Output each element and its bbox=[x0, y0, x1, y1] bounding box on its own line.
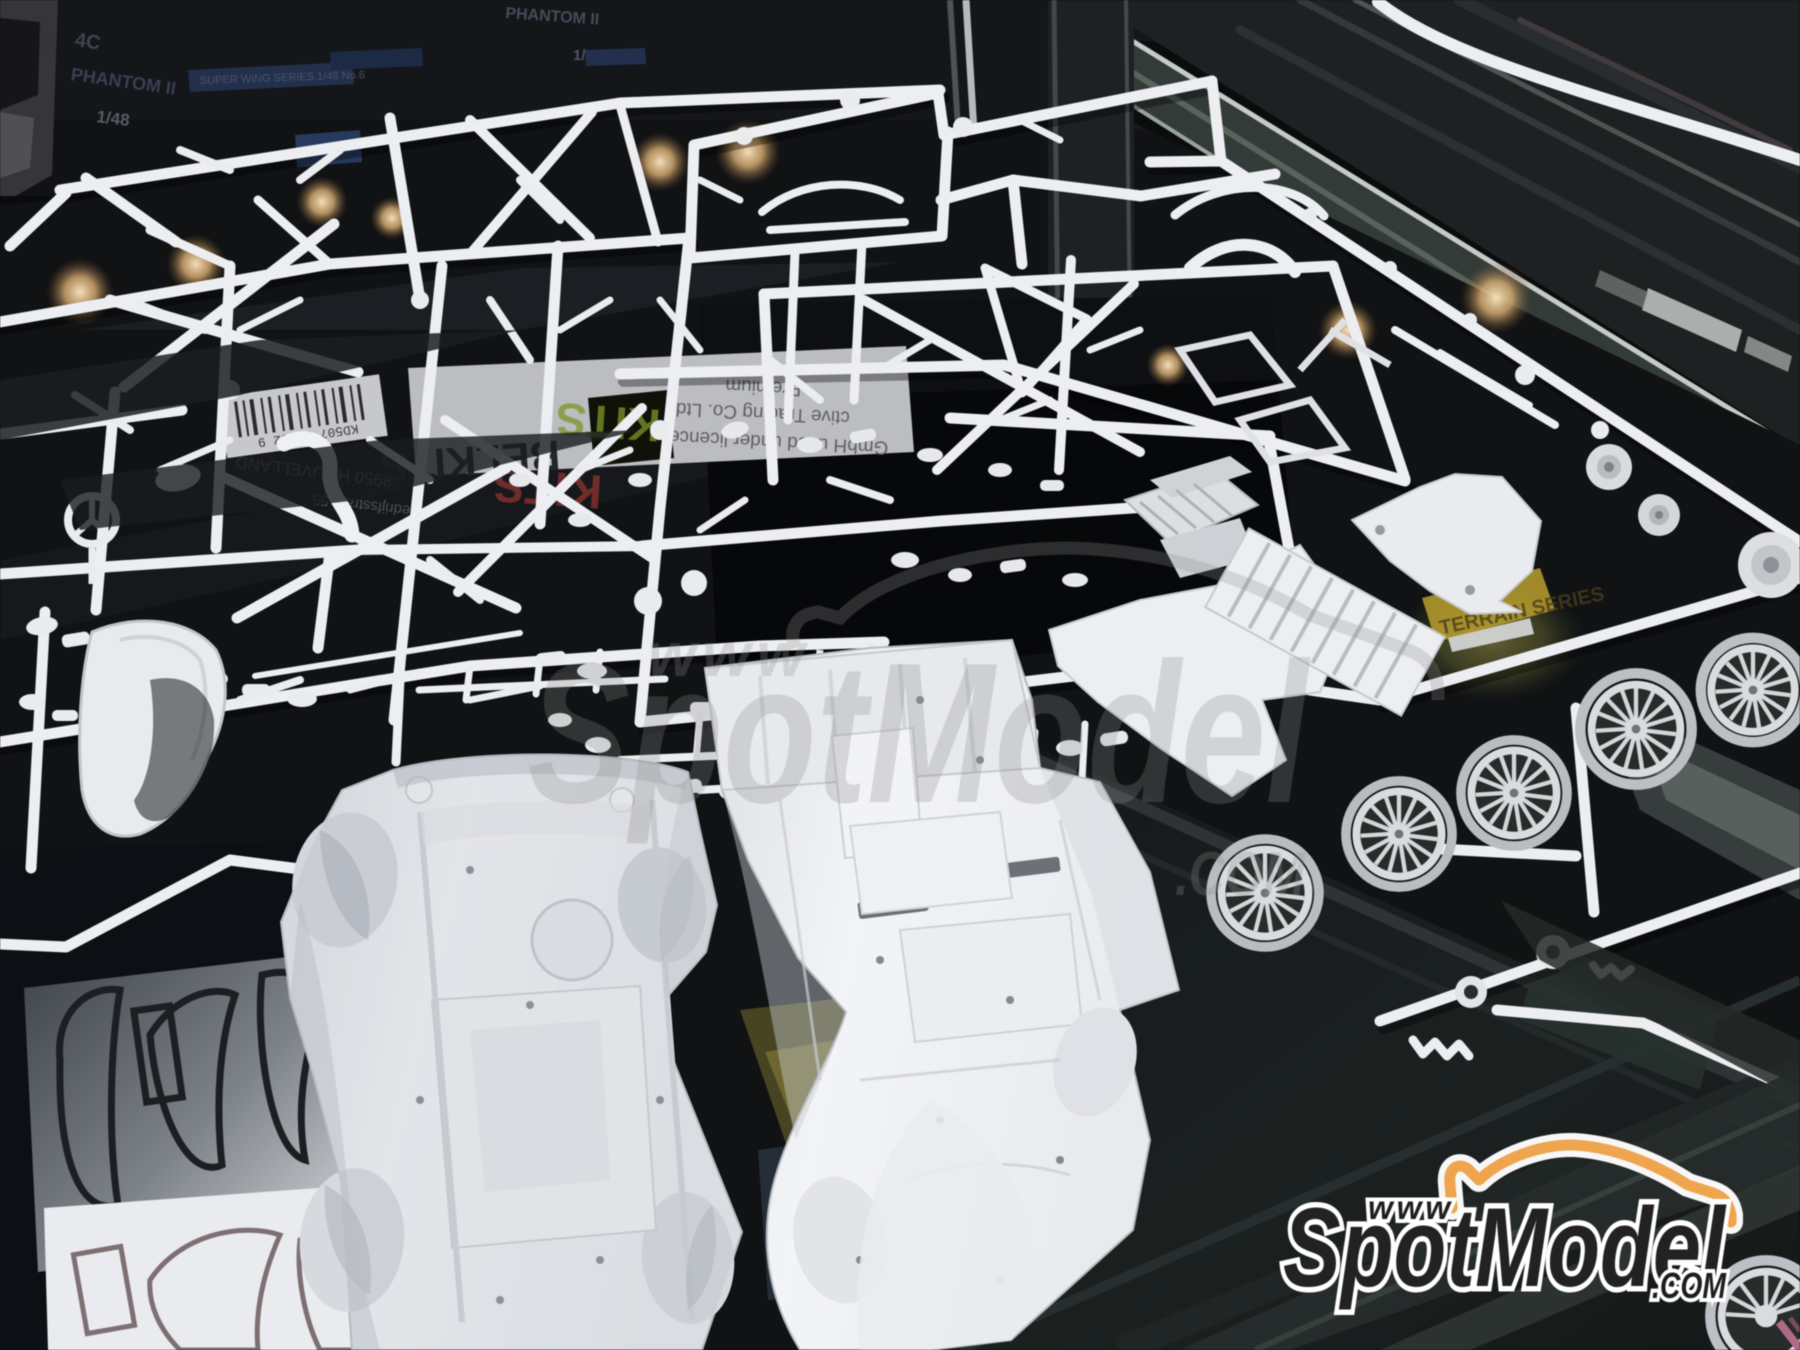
svg-text:.COM: .COM bbox=[1652, 1265, 1727, 1306]
svg-text:4C: 4C bbox=[74, 29, 102, 54]
svg-text:SpotModel: SpotModel bbox=[528, 622, 1311, 845]
svg-text:1/48: 1/48 bbox=[96, 107, 131, 130]
svg-text:.COM: .COM bbox=[1175, 840, 1306, 909]
